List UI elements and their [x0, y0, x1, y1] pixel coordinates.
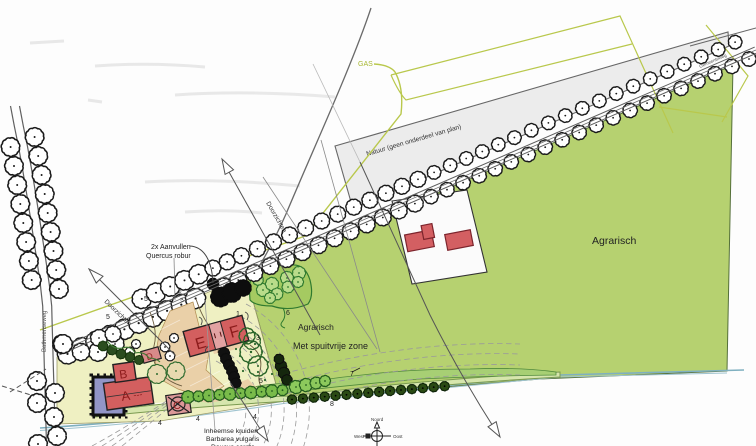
- svg-text:4: 4: [196, 416, 200, 423]
- svg-text:Noord: Noord: [371, 417, 384, 422]
- svg-text:West: West: [354, 434, 365, 439]
- svg-text:Barbarea vulgaris: Barbarea vulgaris: [206, 436, 260, 443]
- svg-text:7: 7: [350, 371, 354, 378]
- svg-text:GAS: GAS: [358, 61, 373, 68]
- svg-text:5: 5: [259, 378, 263, 385]
- svg-text:Quercus robur: Quercus robur: [146, 253, 191, 260]
- svg-text:5: 5: [144, 296, 148, 303]
- svg-text:Oost: Oost: [393, 434, 403, 439]
- svg-text:5: 5: [106, 314, 110, 321]
- svg-text:1: 1: [236, 311, 240, 318]
- svg-text:4: 4: [253, 414, 257, 421]
- svg-text:---: ---: [133, 389, 143, 400]
- svg-text:6: 6: [286, 310, 290, 317]
- svg-text:4: 4: [158, 420, 162, 427]
- svg-text:3: 3: [256, 335, 260, 342]
- svg-text:2x Aanvullen: 2x Aanvullen: [151, 244, 191, 251]
- svg-text:Agrarisch: Agrarisch: [298, 322, 334, 332]
- svg-text:Agrarisch: Agrarisch: [592, 235, 637, 247]
- svg-text:Inheemse kruiden: Inheemse kruiden: [204, 428, 258, 435]
- svg-text:8: 8: [330, 401, 334, 408]
- svg-text:C: C: [173, 400, 181, 412]
- svg-text:Met spuitvrije zone: Met spuitvrije zone: [293, 341, 368, 351]
- svg-text:Bathmenseweg: Bathmenseweg: [42, 311, 48, 352]
